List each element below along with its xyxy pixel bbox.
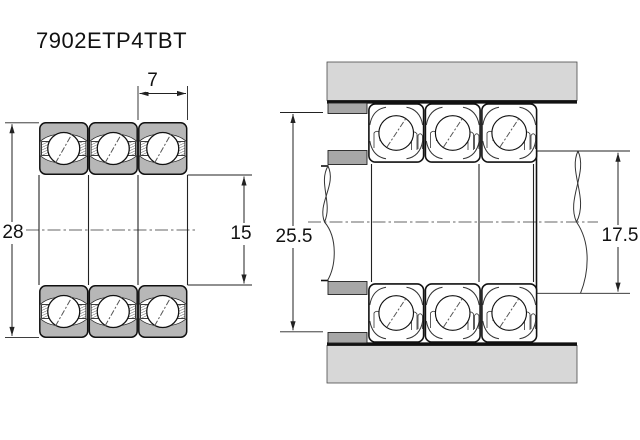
bearing-section-top-3 [139, 123, 187, 174]
inner-spacer-bottom [328, 282, 367, 295]
drawing-canvas [0, 0, 640, 440]
bearing-mounted-top-3 [482, 104, 537, 162]
shaft-left-stub [321, 166, 334, 281]
dim-label-housing-shoulder: 25.5 [274, 226, 315, 248]
bearing-section-bottom-2 [89, 286, 137, 337]
bearing-mounted-bottom-3 [482, 284, 537, 342]
housing-bottom [327, 346, 577, 384]
dim-label-outer-diameter: 28 [0, 222, 25, 244]
bearing-dimension-drawing: 7902ETP4TBT 7 28 15 25.5 17.5 [0, 0, 640, 440]
front-section-view [5, 86, 252, 337]
inner-spacer-top [328, 151, 367, 165]
dim-label-bearing-width: 7 [145, 70, 160, 92]
bearing-section-top-2 [89, 123, 137, 174]
part-number-title: 7902ETP4TBT [36, 28, 187, 54]
dim-label-bore-diameter: 15 [228, 223, 253, 245]
mounted-arrangement-view [280, 62, 630, 383]
bearing-section-bottom-1 [40, 286, 88, 337]
bearing-section-top-1 [40, 123, 88, 174]
bearing-mounted-bottom-2 [425, 284, 480, 342]
outer-spacer-top [328, 103, 367, 114]
bearing-mounted-bottom-1 [369, 284, 424, 342]
bearing-section-bottom-3 [139, 286, 187, 337]
bearing-mounted-top-2 [425, 104, 480, 162]
outer-spacer-bottom [328, 333, 367, 344]
bearing-mounted-top-1 [369, 104, 424, 162]
dim-label-shaft-shoulder: 17.5 [600, 225, 640, 247]
housing-top [327, 62, 577, 101]
